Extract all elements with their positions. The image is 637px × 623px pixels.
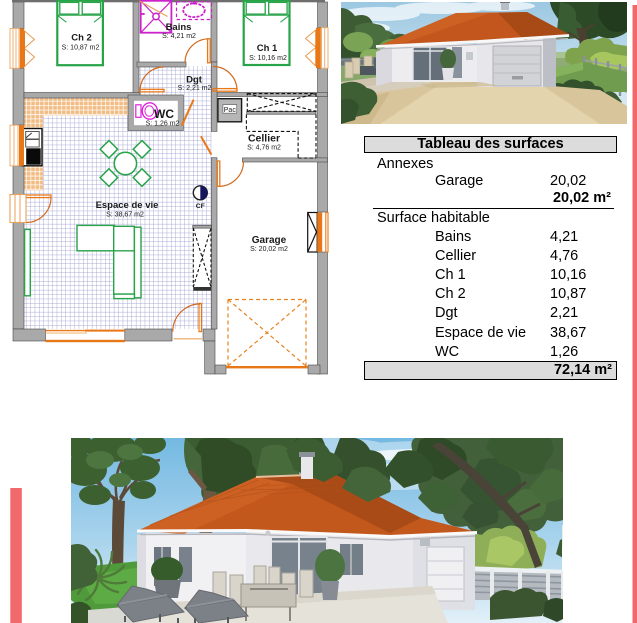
- svg-text:Ch 2: Ch 2: [71, 33, 92, 44]
- svg-text:S: 10,87 m2: S: 10,87 m2: [62, 45, 100, 52]
- svg-text:S: 4,21 m2: S: 4,21 m2: [162, 33, 196, 40]
- svg-text:Ch 1: Ch 1: [257, 43, 278, 54]
- svg-text:Dgt: Dgt: [186, 75, 203, 86]
- svg-text:Espace de vie: Espace de vie: [96, 200, 159, 211]
- svg-text:S: 1,26 m2: S: 1,26 m2: [146, 121, 180, 128]
- svg-text:Garage: Garage: [252, 235, 287, 246]
- svg-text:S: 4,76 m2: S: 4,76 m2: [247, 145, 281, 152]
- svg-text:S: 38,67 m2: S: 38,67 m2: [106, 212, 144, 219]
- svg-text:Bains: Bains: [166, 22, 192, 33]
- svg-text:S: 10,16 m2: S: 10,16 m2: [249, 55, 287, 62]
- svg-text:S: 2,21 m2: S: 2,21 m2: [178, 85, 212, 92]
- svg-text:S: 20,02 m2: S: 20,02 m2: [250, 246, 288, 253]
- svg-text:CF: CF: [196, 203, 205, 210]
- svg-text:Pac: Pac: [224, 107, 237, 114]
- svg-text:WC: WC: [154, 107, 174, 121]
- svg-text:Cellier: Cellier: [248, 133, 280, 145]
